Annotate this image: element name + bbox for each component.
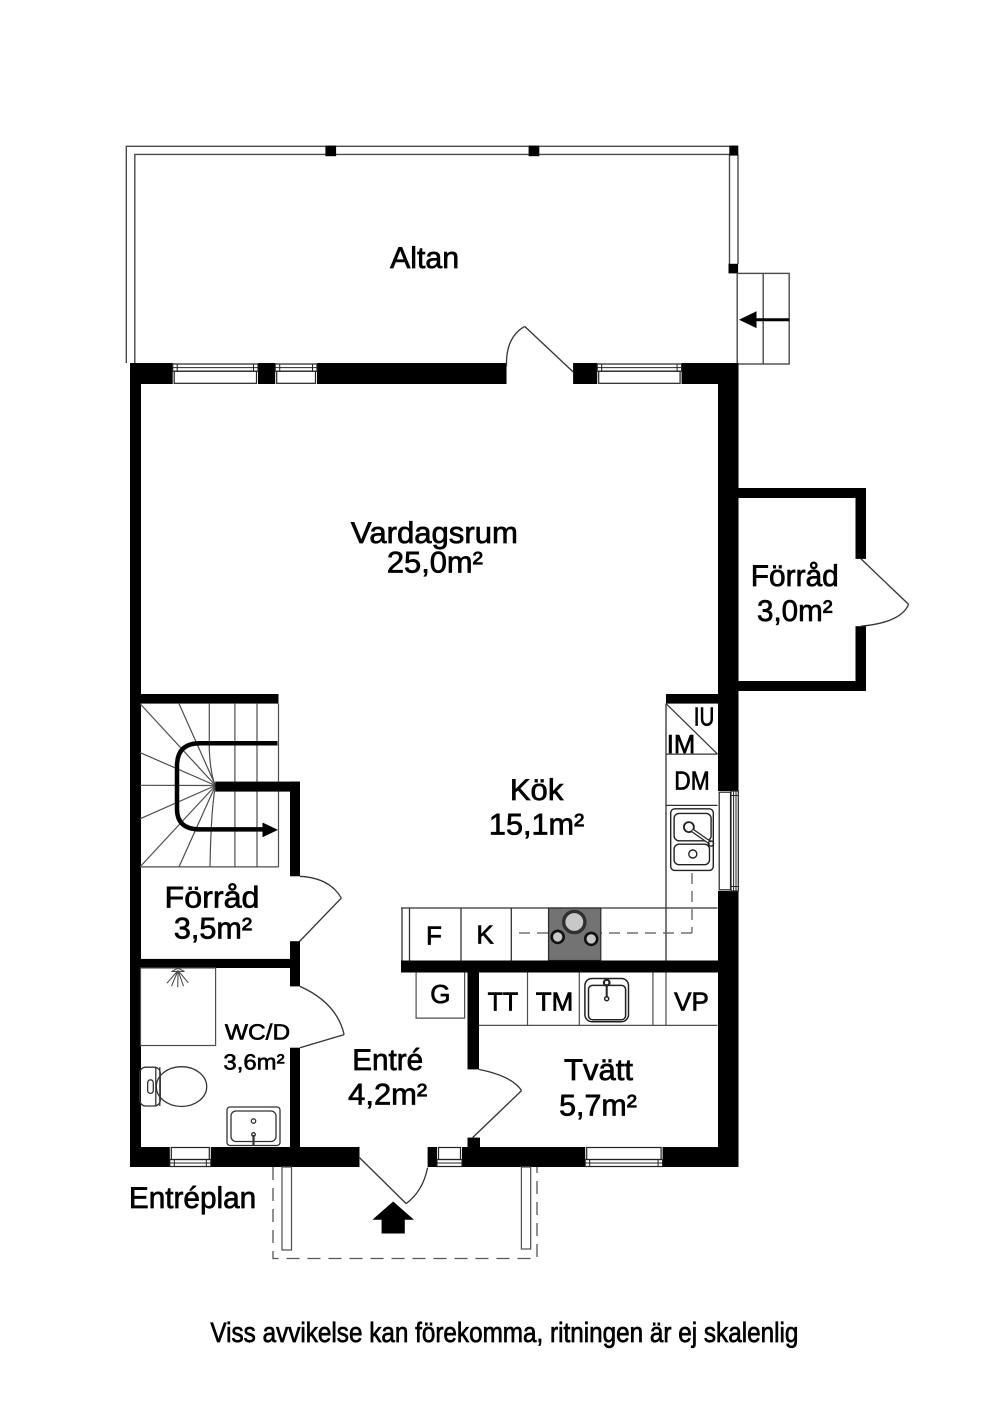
svg-text:Entré: Entré bbox=[352, 1044, 423, 1077]
svg-text:IU: IU bbox=[694, 702, 715, 732]
svg-text:G: G bbox=[430, 979, 450, 1009]
svg-text:Altan: Altan bbox=[390, 242, 459, 275]
svg-text:5,7m²: 5,7m² bbox=[559, 1090, 637, 1123]
svg-text:DM: DM bbox=[674, 766, 709, 796]
svg-text:F: F bbox=[426, 920, 442, 950]
svg-text:Tvätt: Tvätt bbox=[564, 1054, 634, 1087]
svg-text:3,5m²: 3,5m² bbox=[174, 913, 252, 946]
svg-text:25,0m²: 25,0m² bbox=[387, 547, 483, 580]
svg-text:IM: IM bbox=[667, 729, 696, 759]
svg-text:TT: TT bbox=[488, 987, 519, 1017]
svg-text:4,2m²: 4,2m² bbox=[348, 1079, 427, 1112]
svg-text:Entréplan: Entréplan bbox=[129, 1182, 256, 1215]
svg-text:VP: VP bbox=[674, 987, 709, 1017]
svg-text:3,0m²: 3,0m² bbox=[757, 595, 833, 628]
svg-text:TM: TM bbox=[536, 987, 574, 1017]
svg-text:K: K bbox=[476, 920, 494, 950]
svg-text:Kök: Kök bbox=[510, 774, 565, 807]
svg-text:15,1m²: 15,1m² bbox=[489, 809, 584, 842]
svg-text:Viss avvikelse kan förekomma,: Viss avvikelse kan förekomma, ritningen … bbox=[210, 1317, 798, 1348]
svg-text:Vardagsrum: Vardagsrum bbox=[351, 517, 518, 550]
svg-text:Förråd: Förråd bbox=[751, 560, 839, 593]
svg-text:Förråd: Förråd bbox=[165, 882, 260, 915]
svg-text:WC/D: WC/D bbox=[225, 1020, 290, 1045]
svg-text:3,6m²: 3,6m² bbox=[223, 1049, 284, 1074]
